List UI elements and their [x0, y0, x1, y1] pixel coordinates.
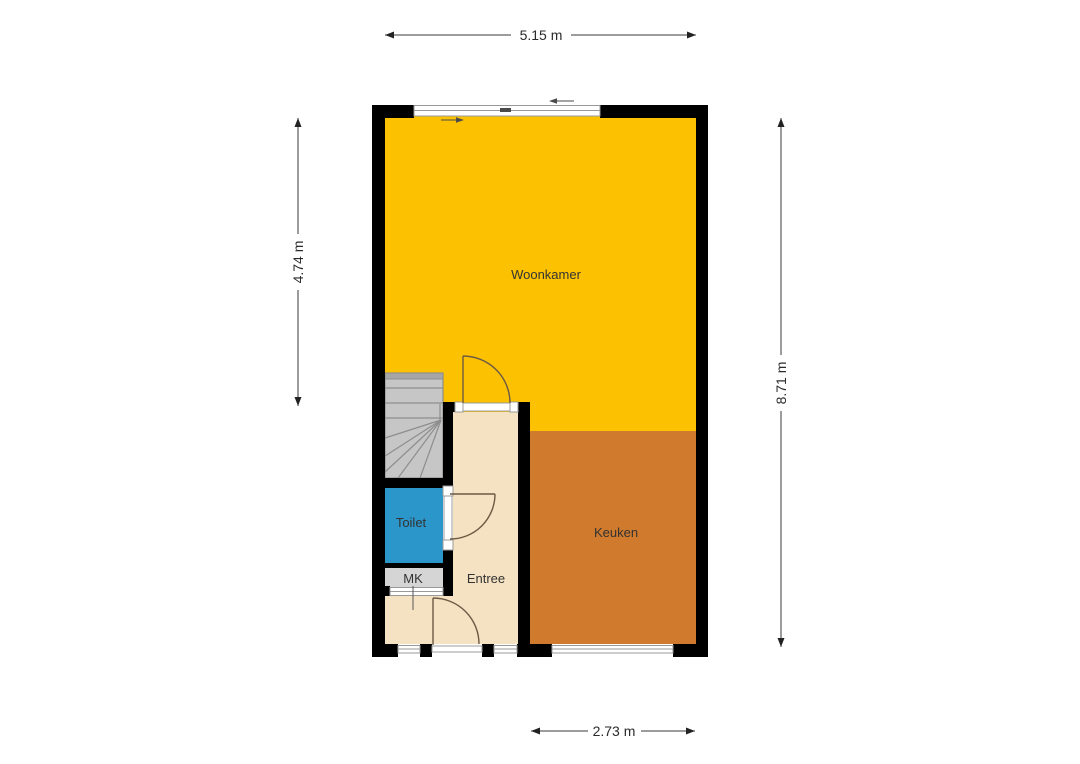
door-woonkamer-threshold	[463, 403, 510, 411]
wall-bottom-middle	[517, 644, 552, 657]
wall-mk-pilaster	[372, 586, 390, 596]
dimension-right: 8.71 m	[773, 118, 789, 647]
arrowhead-right-icon	[686, 728, 695, 735]
label-keuken: Keuken	[594, 525, 638, 540]
wall-top-right	[600, 105, 708, 118]
arrowhead-left-icon	[531, 728, 540, 735]
arrowhead-left-icon	[385, 32, 394, 39]
door-toilet-opening	[444, 496, 452, 540]
front-door-post-left	[420, 644, 432, 657]
door-toilet-post-bottom	[443, 540, 453, 550]
arrowhead-up-icon	[778, 118, 785, 127]
label-toilet: Toilet	[396, 515, 427, 530]
dimension-bottom: 2.73 m	[531, 723, 695, 739]
wall-toilet-mk-divider	[385, 563, 443, 568]
staircase	[385, 373, 443, 478]
dimension-left-label: 4.74 m	[290, 241, 306, 284]
dimension-top-label: 5.15 m	[520, 27, 563, 43]
dimension-top: 5.15 m	[385, 27, 696, 43]
door-front-threshold	[432, 646, 482, 652]
dimension-right-label: 8.71 m	[773, 362, 789, 405]
wall-left	[372, 105, 385, 657]
arrowhead-down-icon	[778, 638, 785, 647]
arrowhead-right-icon	[687, 32, 696, 39]
entree-floor-lower	[385, 596, 453, 644]
dimension-left: 4.74 m	[290, 118, 306, 406]
sliding-door-handle-icon	[500, 108, 511, 112]
door-woonkamer-post-left	[455, 402, 463, 412]
label-woonkamer: Woonkamer	[511, 267, 582, 282]
dimension-bottom-label: 2.73 m	[593, 723, 636, 739]
wall-bottom-left-corner	[372, 644, 398, 657]
wall-toilet-right-lower	[443, 550, 453, 596]
slide-arrow-left-icon	[549, 98, 557, 104]
label-mk: MK	[403, 571, 423, 586]
arrowhead-up-icon	[295, 118, 302, 127]
floorplan-drawing: Woonkamer Keuken Toilet Entree MK 5.15 m…	[0, 0, 1080, 764]
stairs-top-rail	[385, 373, 443, 379]
label-entree: Entree	[467, 571, 505, 586]
wall-right	[696, 105, 708, 657]
door-woonkamer-post-right	[510, 402, 518, 412]
front-door-post-right	[482, 644, 494, 657]
arrowhead-down-icon	[295, 397, 302, 406]
wall-entree-keuken-divider	[518, 402, 530, 644]
wall-stairs-entree	[443, 402, 453, 488]
wall-bottom-right-corner	[673, 644, 708, 657]
floorplan-canvas: Woonkamer Keuken Toilet Entree MK 5.15 m…	[0, 0, 1080, 764]
